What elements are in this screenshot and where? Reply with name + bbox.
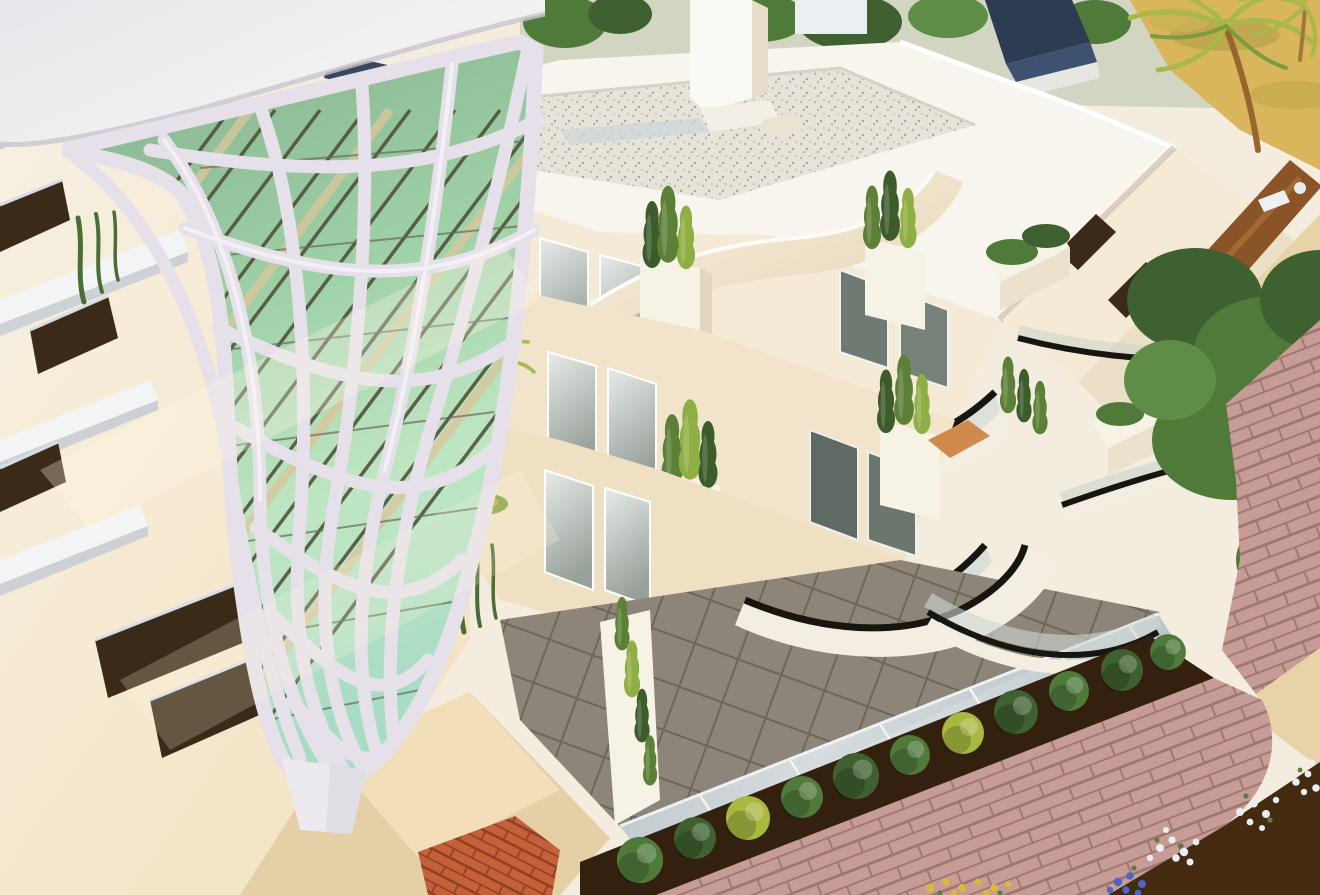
planter-box xyxy=(865,238,925,330)
distant-house xyxy=(795,0,867,34)
patio-furniture xyxy=(1294,182,1306,194)
chimney-shade-face xyxy=(752,0,768,98)
chimney xyxy=(690,0,752,112)
french-door xyxy=(810,430,858,540)
building-render xyxy=(0,0,1320,895)
architectural-render-canvas xyxy=(0,0,1320,895)
french-door xyxy=(605,488,650,606)
hedge xyxy=(1022,224,1070,248)
tree xyxy=(1124,340,1216,420)
planter-box xyxy=(880,420,940,520)
